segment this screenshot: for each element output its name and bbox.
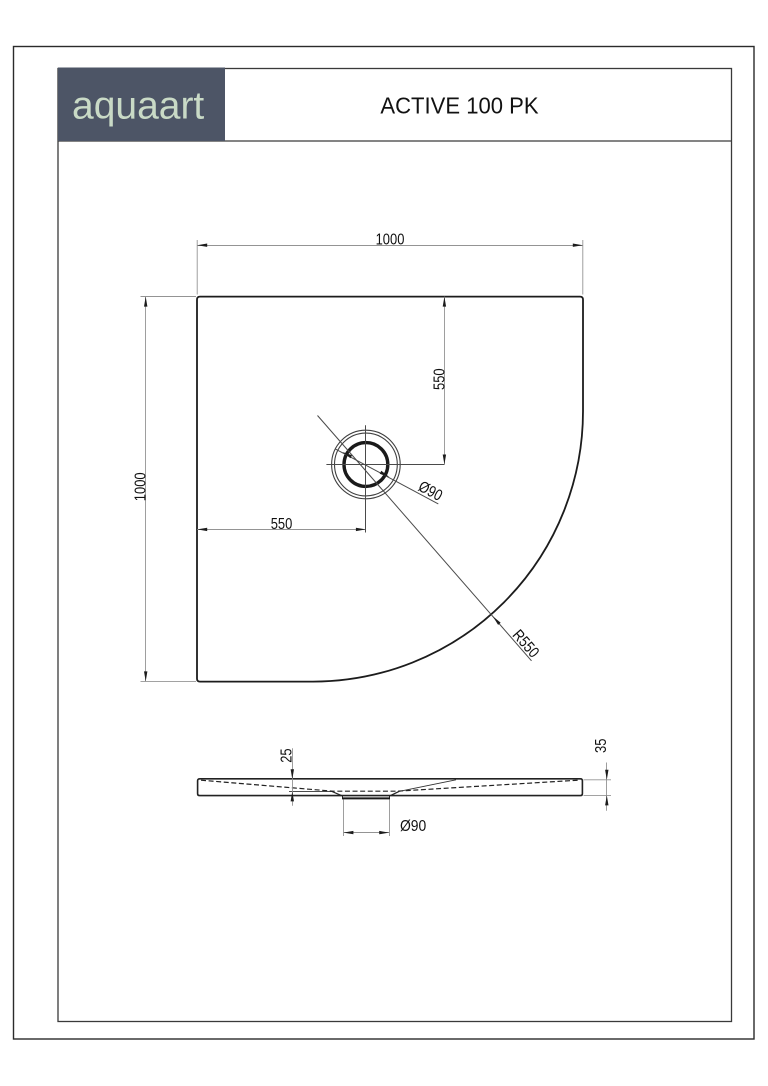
svg-text:Ø90: Ø90	[400, 818, 426, 835]
svg-text:550: 550	[271, 516, 293, 533]
svg-text:35: 35	[593, 739, 610, 753]
svg-text:550: 550	[431, 368, 448, 390]
svg-text:ACTIVE 100 PK: ACTIVE 100 PK	[380, 93, 538, 119]
svg-text:1000: 1000	[376, 231, 405, 248]
svg-text:1000: 1000	[132, 472, 149, 501]
svg-text:aquaart: aquaart	[72, 85, 204, 128]
svg-text:25: 25	[278, 748, 295, 762]
